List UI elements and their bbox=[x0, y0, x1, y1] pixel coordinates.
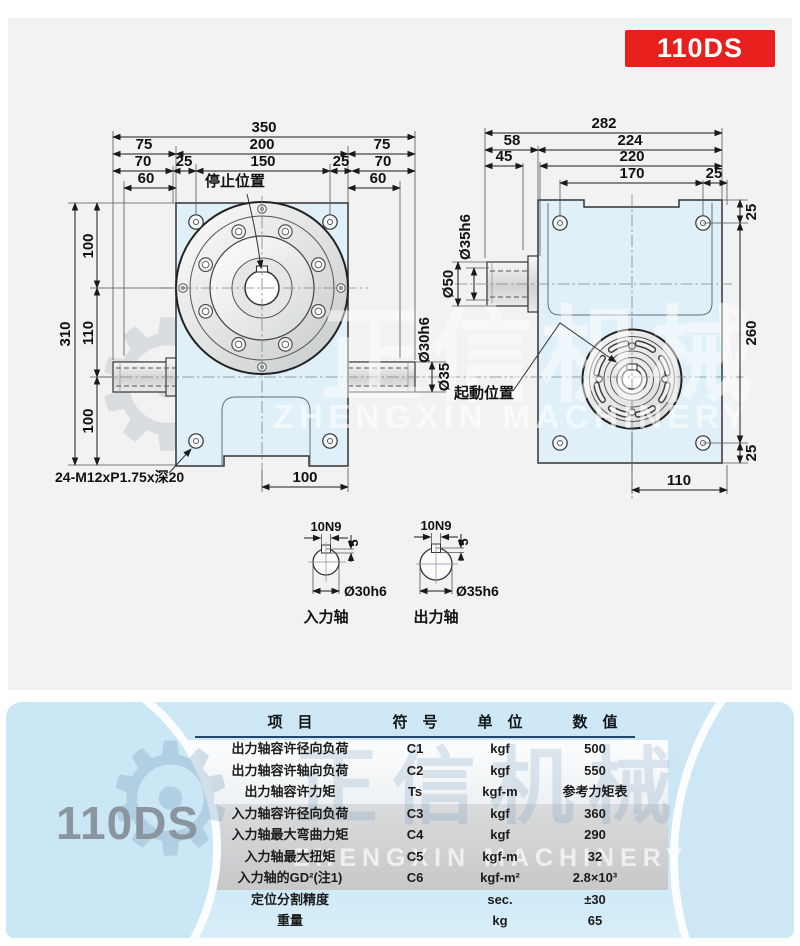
model-badge: 110DS bbox=[625, 30, 775, 67]
spec-row: 重量 kg 65 bbox=[195, 910, 635, 932]
output-keyway-dim: 10N9 bbox=[420, 518, 451, 533]
output-shaft-label: 出力轴 bbox=[413, 608, 458, 626]
cell-unit: kgf bbox=[445, 803, 555, 825]
spec-panel: ⚙ 正信机械 ZHENGXIN MACHINERY 110DS 项 目 符 号 … bbox=[6, 702, 794, 938]
cell-item: 出力轴容许轴向负荷 bbox=[195, 760, 385, 782]
cell-value: 500 bbox=[555, 738, 635, 760]
spec-row: 出力轴容许力矩 Ts kgf-m 参考力矩表 bbox=[195, 781, 635, 803]
dim-front-60l: 60 bbox=[138, 170, 155, 187]
dim-side-170: 170 bbox=[619, 165, 644, 182]
header-unit: 单 位 bbox=[445, 710, 555, 736]
cell-symbol: C5 bbox=[385, 846, 445, 868]
cell-item: 入力轴的GD²(注1) bbox=[195, 867, 385, 889]
dim-side-220: 220 bbox=[619, 148, 644, 165]
cell-item: 重量 bbox=[195, 910, 385, 932]
header-item: 项 目 bbox=[195, 710, 385, 736]
dim-side-110: 110 bbox=[667, 472, 691, 489]
latin-watermark-drawing: ZHENGXIN MACHINERY bbox=[273, 398, 750, 435]
spec-table-header: 项 目 符 号 单 位 数 值 bbox=[195, 710, 635, 738]
cell-symbol: Ts bbox=[385, 781, 445, 803]
bolt-note-label: 24-M12xP1.75x深20 bbox=[55, 469, 184, 485]
cell-unit: kg bbox=[445, 910, 555, 932]
spec-row: 入力轴容许径向负荷 C3 kgf 360 bbox=[195, 803, 635, 825]
header-symbol: 符 号 bbox=[385, 710, 445, 736]
dim-side-dia50: Ø50 bbox=[440, 270, 457, 298]
cell-symbol: C3 bbox=[385, 803, 445, 825]
cell-value: 2.8×10³ bbox=[555, 867, 635, 889]
dim-side-dia35h6: Ø35h6 bbox=[457, 214, 474, 260]
cell-unit: sec. bbox=[445, 889, 555, 911]
stop-position-label: 停止位置 bbox=[205, 172, 265, 190]
dim-side-45: 45 bbox=[496, 148, 513, 165]
dim-front-100t: 100 bbox=[80, 233, 97, 258]
dim-side-25t: 25 bbox=[706, 165, 723, 182]
spec-row: 入力轴最大扭矩 C5 kgf-m 32 bbox=[195, 846, 635, 868]
spec-row: 入力轴的GD²(注1) C6 kgf-m² 2.8×10³ bbox=[195, 867, 635, 889]
dim-front-100-bottom: 100 bbox=[292, 469, 317, 486]
decorative-arc-right bbox=[670, 702, 794, 938]
model-badge-label: 110DS bbox=[657, 33, 743, 64]
dim-front-75l: 75 bbox=[136, 136, 153, 153]
cell-value: 65 bbox=[555, 910, 635, 932]
cell-symbol: C6 bbox=[385, 867, 445, 889]
cell-unit: kgf bbox=[445, 760, 555, 782]
cell-unit: kgf-m² bbox=[445, 867, 555, 889]
dim-front-dia30h6: Ø30h6 bbox=[416, 317, 433, 363]
dim-front-310: 310 bbox=[57, 321, 74, 346]
spec-table: 项 目 符 号 单 位 数 值 出力轴容许径向负荷 C1 kgf 500 出力轴… bbox=[195, 710, 635, 932]
cell-symbol: C4 bbox=[385, 824, 445, 846]
cell-value: 290 bbox=[555, 824, 635, 846]
dim-front-350: 350 bbox=[251, 119, 276, 136]
cell-symbol: C1 bbox=[385, 738, 445, 760]
input-keyway-dim: 10N9 bbox=[310, 519, 341, 534]
input-dia-dim: Ø30h6 bbox=[344, 583, 387, 599]
dim-side-58: 58 bbox=[504, 132, 521, 149]
cell-symbol bbox=[385, 889, 445, 911]
cell-unit: kgf bbox=[445, 824, 555, 846]
cell-symbol bbox=[385, 910, 445, 932]
dim-front-100b: 100 bbox=[80, 408, 97, 433]
dim-side-282: 282 bbox=[591, 115, 616, 132]
cell-value: 32 bbox=[555, 846, 635, 868]
cell-value: 550 bbox=[555, 760, 635, 782]
dim-front-200: 200 bbox=[249, 136, 274, 153]
dim-front-dia35: Ø35 bbox=[436, 363, 453, 391]
dim-side-25r2: 25 bbox=[743, 445, 760, 462]
cell-value: ±30 bbox=[555, 889, 635, 911]
dim-side-224: 224 bbox=[617, 132, 643, 149]
cell-item: 出力轴容许径向负荷 bbox=[195, 738, 385, 760]
cell-value: 参考力矩表 bbox=[555, 781, 635, 803]
dim-front-75r: 75 bbox=[374, 136, 391, 153]
cell-item: 入力轴最大扭矩 bbox=[195, 846, 385, 868]
cell-item: 入力轴容许径向负荷 bbox=[195, 803, 385, 825]
dim-front-70r: 70 bbox=[375, 153, 392, 170]
cell-value: 360 bbox=[555, 803, 635, 825]
cell-item: 出力轴容许力矩 bbox=[195, 781, 385, 803]
dim-side-260: 260 bbox=[743, 320, 760, 345]
output-keyway-depth-dim: 5 bbox=[456, 538, 471, 545]
technical-drawing: ⚙ bbox=[0, 0, 800, 690]
spec-row: 出力轴容许径向负荷 C1 kgf 500 bbox=[195, 738, 635, 760]
cell-item: 定位分割精度 bbox=[195, 889, 385, 911]
cell-unit: kgf-m bbox=[445, 846, 555, 868]
dim-front-110: 110 bbox=[80, 321, 97, 345]
dim-side-25r1: 25 bbox=[743, 204, 760, 221]
input-shaft-label: 入力轴 bbox=[303, 608, 348, 626]
dim-front-150: 150 bbox=[250, 153, 275, 170]
model-label: 110DS bbox=[56, 796, 199, 850]
spec-row: 出力轴容许轴向负荷 C2 kgf 550 bbox=[195, 760, 635, 782]
spec-row: 入力轴最大弯曲力矩 C4 kgf 290 bbox=[195, 824, 635, 846]
dim-front-25l: 25 bbox=[176, 153, 193, 170]
dim-front-25r: 25 bbox=[333, 153, 350, 170]
cell-unit: kgf-m bbox=[445, 781, 555, 803]
start-position-label: 起動位置 bbox=[453, 384, 514, 402]
cell-symbol: C2 bbox=[385, 760, 445, 782]
dim-front-60r: 60 bbox=[370, 170, 387, 187]
spec-row: 定位分割精度 sec. ±30 bbox=[195, 889, 635, 911]
input-keyway-depth-dim: 5 bbox=[346, 539, 361, 546]
dim-front-70l: 70 bbox=[135, 153, 152, 170]
cell-unit: kgf bbox=[445, 738, 555, 760]
cell-item: 入力轴最大弯曲力矩 bbox=[195, 824, 385, 846]
header-value: 数 值 bbox=[555, 710, 635, 736]
output-dia-dim: Ø35h6 bbox=[456, 583, 499, 599]
